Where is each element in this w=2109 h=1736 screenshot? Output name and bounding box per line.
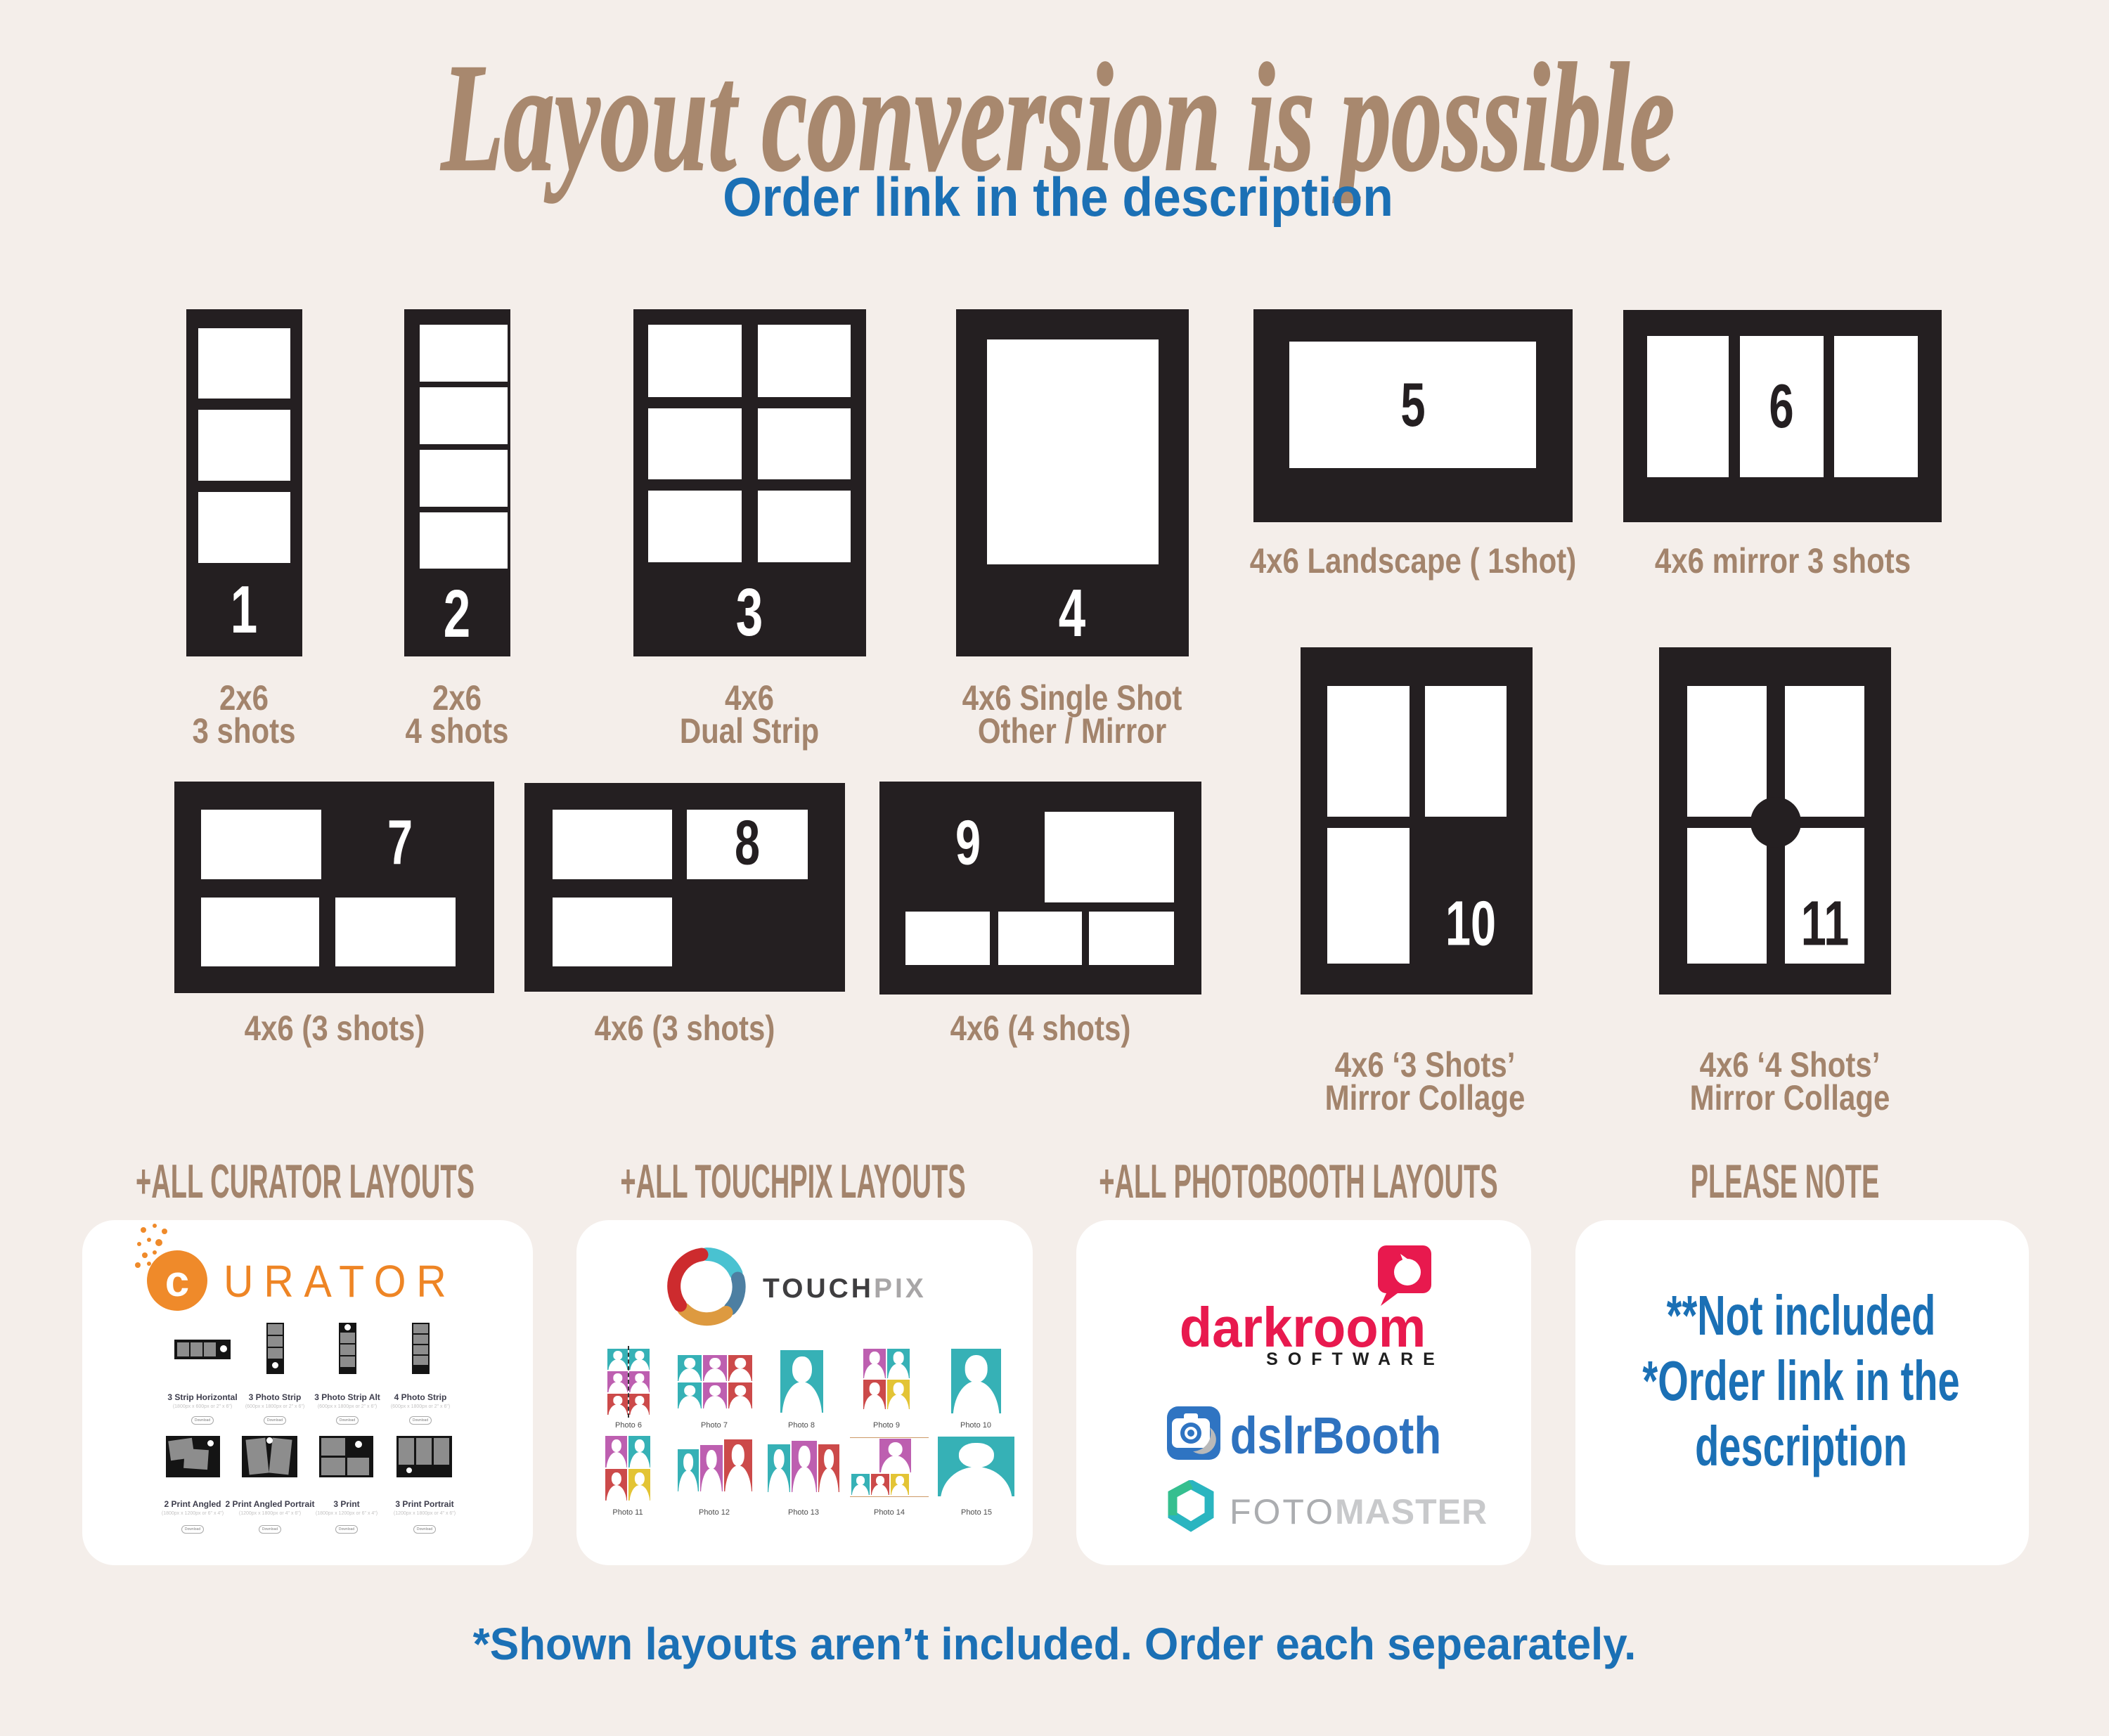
svg-text:c: c <box>165 1257 189 1306</box>
